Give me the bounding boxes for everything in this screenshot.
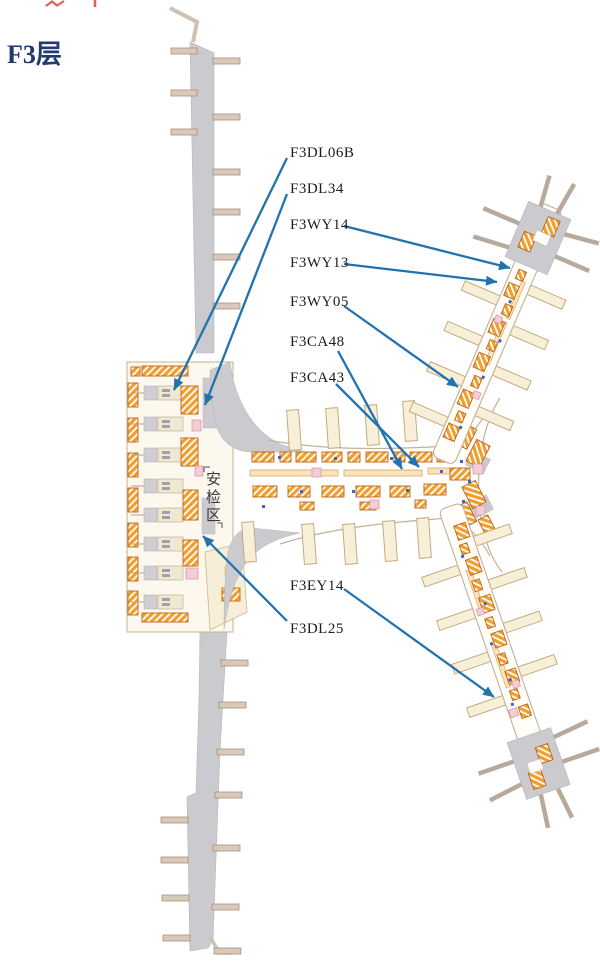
arrow-to-f3dl06b	[174, 158, 287, 390]
gate-label-f3ey14: F3EY14	[290, 578, 344, 594]
gate-label-f3wy13: F3WY13	[290, 255, 349, 271]
security-check-area-label: 安 检 区	[204, 467, 222, 528]
arrow-to-f3ca48	[338, 351, 402, 469]
gate-label-f3dl34: F3DL34	[290, 181, 344, 197]
terminal-floor-map: F3层 安	[0, 0, 600, 967]
gate-label-f3wy05: F3WY05	[290, 294, 349, 310]
svg-text:安: 安	[206, 471, 221, 488]
arrow-to-f3wy05	[344, 306, 458, 387]
concourse-antenna	[170, 8, 197, 42]
gate-label-f3dl25: F3DL25	[290, 621, 344, 637]
northeast-pier	[386, 155, 600, 484]
gate-label-f3wy14: F3WY14	[290, 217, 349, 233]
clipped-red-text-fragment	[46, 0, 95, 7]
svg-text:区: 区	[206, 508, 221, 524]
airport-floor-map-page: F3层 安	[0, 0, 600, 967]
svg-text:检: 检	[206, 489, 221, 506]
gate-label-f3ca48: F3CA48	[290, 334, 345, 350]
gate-labels: F3DL06B F3DL34 F3WY14 F3WY13 F3WY05 F3CA…	[290, 145, 354, 637]
arrow-to-f3wy14	[344, 226, 510, 268]
arrow-to-f3wy13	[344, 264, 497, 282]
gate-label-f3dl06b: F3DL06B	[290, 145, 354, 161]
floor-title: F3层	[7, 40, 62, 69]
gate-label-f3ca43: F3CA43	[290, 370, 345, 386]
